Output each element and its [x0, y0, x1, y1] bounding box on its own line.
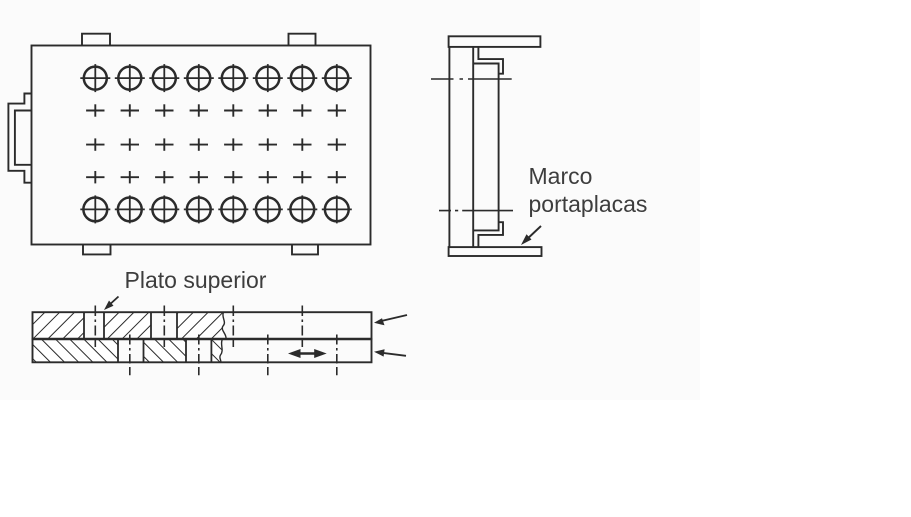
svg-text:Marco: Marco — [529, 163, 593, 189]
svg-text:Plato superior: Plato superior — [125, 267, 267, 293]
svg-text:portaplacas: portaplacas — [529, 191, 648, 217]
